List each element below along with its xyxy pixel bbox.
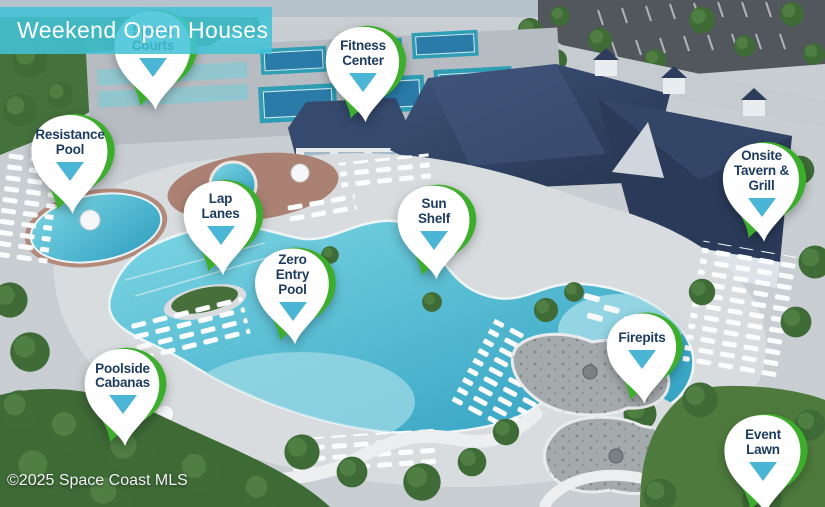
umbrella [291,164,309,182]
umbrella [80,210,100,230]
listing-photo-amenity-map: SportsCourts FitnessCenter ResistancePoo… [0,0,825,507]
aerial-rendering [0,0,825,507]
mls-copyright-watermark: ©2025 Space Coast MLS [7,472,188,490]
banner-title: Weekend Open Houses [17,17,268,44]
open-houses-banner: Weekend Open Houses [0,7,272,54]
spa-pool [210,162,256,208]
